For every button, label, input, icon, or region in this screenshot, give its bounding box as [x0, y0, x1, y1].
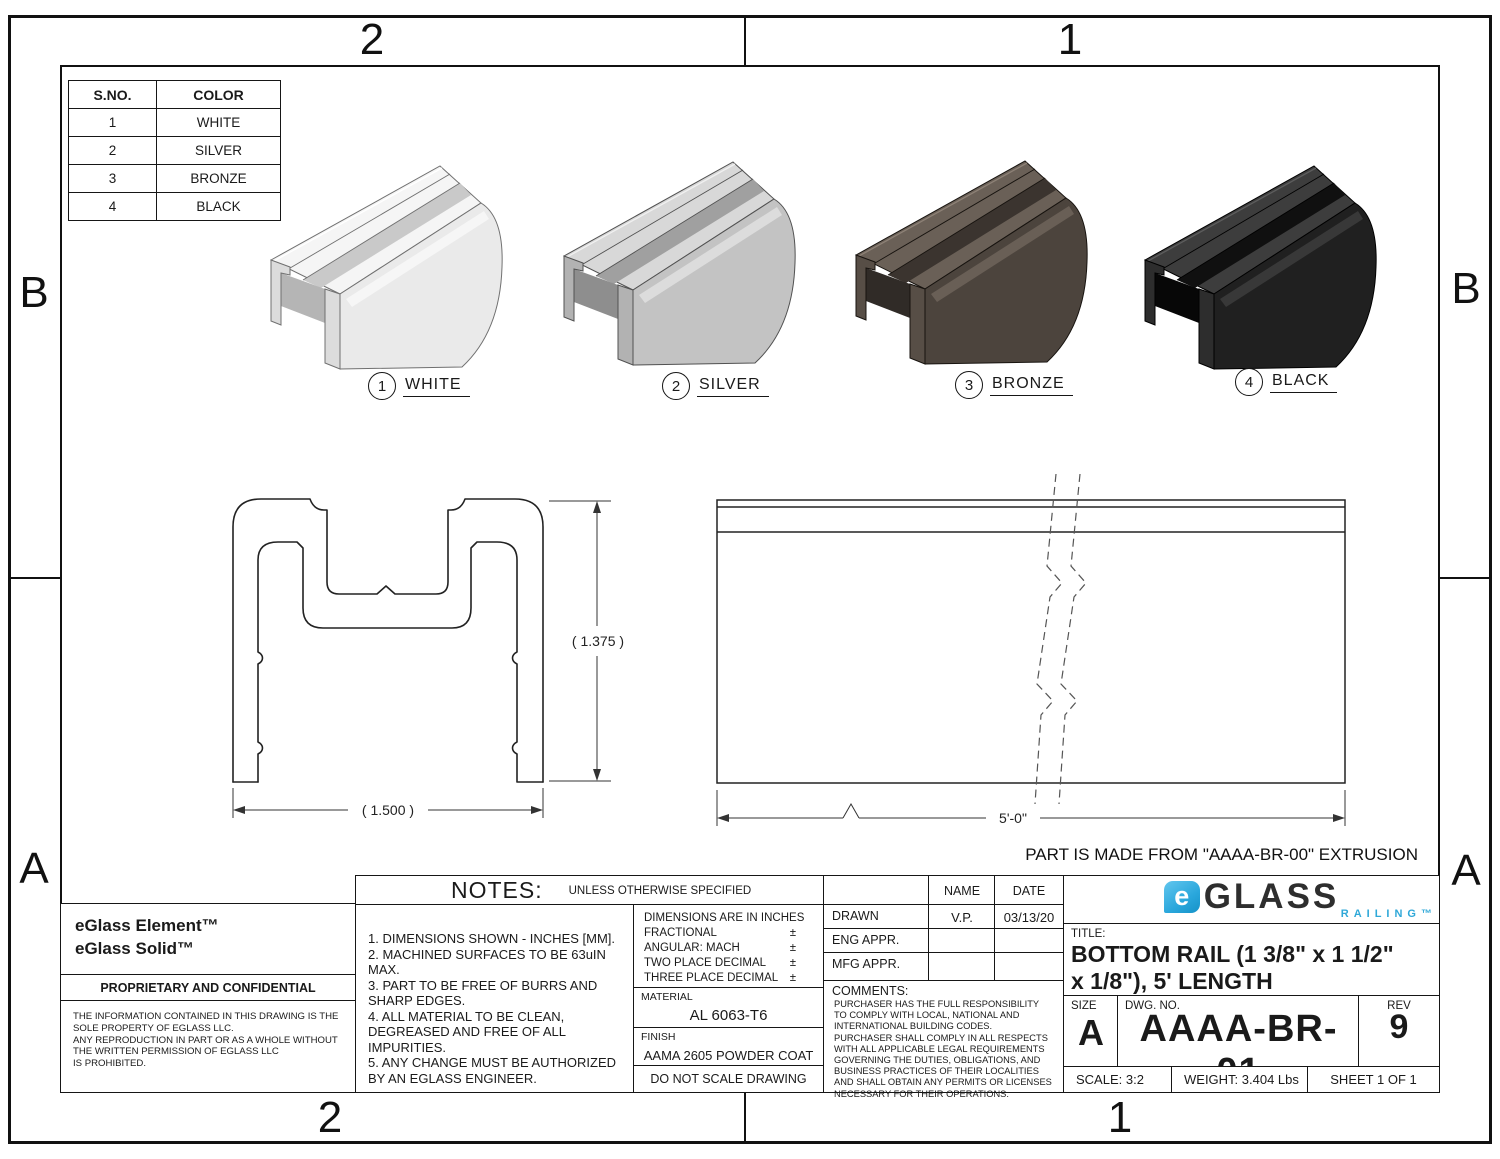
date-header: DATE [994, 875, 1064, 906]
title-label: TITLE: [1064, 924, 1439, 940]
tolerance-row: THREE PLACE DECIMAL± [644, 971, 796, 986]
finish-value: AAMA 2605 POWDER COAT [634, 1048, 823, 1063]
callout-balloon: 3 [955, 371, 983, 399]
do-not-scale-cell: DO NOT SCALE DRAWING [633, 1065, 824, 1093]
table-row: 1 WHITE [69, 109, 281, 137]
zone-label-right-b: B [1451, 264, 1480, 314]
drawn-name: V.P. [928, 904, 996, 930]
callout-label: BLACK [1270, 372, 1337, 393]
logo-cell: e GLASS RAILING™ [1063, 875, 1440, 925]
length-dimension [717, 790, 1345, 826]
iso-view-silver [546, 142, 801, 382]
color-table: S.NO. COLOR 1 WHITE 2 SILVER 3 BRONZE 4 … [68, 80, 281, 221]
mfg-appr-label: MFG APPR. [823, 952, 930, 982]
rail-body [717, 500, 1345, 783]
title-cell: TITLE: BOTTOM RAIL (1 3/8" x 1 1/2" x 1/… [1063, 923, 1440, 997]
name-header: NAME [928, 875, 996, 906]
rev-cell: REV 9 [1358, 995, 1440, 1068]
legal-line: THE WRITTEN PERMISSION OF EGLASS LLC [73, 1046, 343, 1058]
cell-sno-2: 2 [69, 137, 157, 165]
approvals-corner-cell [823, 875, 930, 906]
tolerance-block: DIMENSIONS ARE IN INCHES FRACTIONAL± ANG… [633, 904, 824, 989]
cell-sno-1: 1 [69, 109, 157, 137]
length-dim-label: 5'-0" [999, 810, 1027, 826]
company-line-1: eGlass Element™ [75, 914, 341, 937]
side-view: 5'-0" [700, 470, 1360, 840]
zone-tick-bottom [744, 1093, 746, 1143]
callout-silver: 2 SILVER [662, 372, 769, 400]
note-item: 3. PART TO BE FREE OF BURRS AND SHARP ED… [368, 978, 626, 1009]
notes-body: 1. DIMENSIONS SHOWN - INCHES [MM]. 2. MA… [355, 904, 635, 1093]
notes-title: NOTES: [451, 877, 543, 904]
note-item: 2. MACHINED SURFACES TO BE 63uIN MAX. [368, 947, 626, 978]
note-item: 1. DIMENSIONS SHOWN - INCHES [MM]. [368, 931, 626, 947]
callout-balloon: 1 [368, 372, 396, 400]
tolerance-row: ANGULAR: MACH± [644, 941, 796, 956]
comments-body: PURCHASER HAS THE FULL RESPONSIBILITY TO… [824, 999, 1063, 1100]
note-item: 4. ALL MATERIAL TO BE CLEAN, DEGREASED A… [368, 1009, 626, 1056]
finish-cell: FINISH AAMA 2605 POWDER COAT [633, 1027, 824, 1067]
zone-label-top-2: 2 [360, 15, 384, 65]
iso-view-black [1127, 146, 1382, 386]
zone-label-right-a: A [1451, 846, 1480, 896]
note-item: 5. ANY CHANGE MUST BE AUTHORIZED BY AN E… [368, 1055, 626, 1086]
color-table-header-sno: S.NO. [69, 81, 157, 109]
logo-subtitle: RAILING™ [1341, 908, 1437, 920]
proprietary-bar: PROPRIETARY AND CONFIDENTIAL [60, 974, 356, 1002]
mfg-appr-name [928, 952, 996, 982]
callout-balloon: 2 [662, 372, 690, 400]
height-dim-label: ( 1.375 ) [572, 633, 624, 649]
scale-cell: SCALE: 3:2 [1063, 1066, 1173, 1093]
callout-white: 1 WHITE [368, 372, 470, 400]
table-row: 3 BRONZE [69, 165, 281, 193]
legal-line: IS PROHIBITED. [73, 1058, 343, 1070]
legal-line: THE INFORMATION CONTAINED IN THIS DRAWIN… [73, 1011, 343, 1023]
drawn-date: 03/13/20 [994, 904, 1064, 930]
dwg-no-cell: DWG. NO. AAAA-BR-01 [1117, 995, 1360, 1068]
tolerance-row: TWO PLACE DECIMAL± [644, 956, 796, 971]
break-lines [1035, 474, 1086, 804]
zone-tick-left [8, 577, 60, 579]
callout-bronze: 3 BRONZE [955, 371, 1073, 399]
tolerance-row: FRACTIONAL± [644, 926, 796, 941]
legal-line: SOLE PROPERTY OF EGLASS LLC. [73, 1023, 343, 1035]
zone-tick-right [1440, 577, 1492, 579]
eng-appr-label: ENG APPR. [823, 928, 930, 954]
callout-label: SILVER [697, 376, 769, 397]
callout-label: BRONZE [990, 375, 1073, 396]
company-names: eGlass Element™ eGlass Solid™ [60, 903, 356, 976]
cell-color-1: WHITE [157, 109, 281, 137]
width-dim-label: ( 1.500 ) [362, 802, 414, 818]
legal-line: ANY REPRODUCTION IN PART OR AS A WHOLE W… [73, 1035, 343, 1047]
zone-label-bottom-1: 1 [1108, 1093, 1132, 1143]
material-label: MATERIAL [634, 988, 823, 1006]
drawing-title-line-2: x 1/8"), 5' LENGTH [1064, 967, 1439, 994]
color-table-header-row: S.NO. COLOR [69, 81, 281, 109]
color-table-header-color: COLOR [157, 81, 281, 109]
cell-sno-4: 4 [69, 193, 157, 221]
drawn-label: DRAWN [823, 904, 930, 930]
dimension-arrowheads [233, 501, 601, 814]
extrusion-note: PART IS MADE FROM "AAAA-BR-00" EXTRUSION [1025, 845, 1418, 865]
callout-balloon: 4 [1235, 368, 1263, 396]
sheet-cell: SHEET 1 OF 1 [1307, 1066, 1440, 1093]
notes-subtitle: UNLESS OTHERWISE SPECIFIED [569, 885, 752, 897]
zone-label-left-b: B [19, 268, 48, 318]
iso-view-white [253, 146, 508, 386]
callout-black: 4 BLACK [1235, 368, 1337, 396]
iso-view-bronze [838, 141, 1093, 381]
section-profile [233, 499, 543, 782]
tolerance-line: DIMENSIONS ARE IN INCHES [644, 911, 813, 926]
weight-cell: WEIGHT: 3.404 Lbs [1171, 1066, 1309, 1093]
notes-header: NOTES: UNLESS OTHERWISE SPECIFIED [355, 875, 824, 906]
material-value: AL 6063-T6 [634, 1007, 823, 1024]
finish-label: FINISH [634, 1028, 823, 1046]
rev-value: 9 [1359, 1008, 1439, 1047]
cell-sno-3: 3 [69, 165, 157, 193]
size-cell: SIZE A [1063, 995, 1119, 1068]
eng-appr-name [928, 928, 996, 954]
mfg-appr-date [994, 952, 1064, 982]
zone-label-top-1: 1 [1058, 15, 1082, 65]
logo-brand-text: GLASS [1204, 881, 1340, 913]
size-value: A [1064, 1012, 1118, 1054]
drawing-title-line-1: BOTTOM RAIL (1 3/8" x 1 1/2" [1064, 940, 1439, 967]
zone-label-bottom-2: 2 [318, 1093, 342, 1143]
section-view: ( 1.375 ) ( 1.500 ) [200, 480, 660, 850]
callout-label: WHITE [403, 376, 470, 397]
eng-appr-date [994, 928, 1064, 954]
drawing-sheet: 2 1 2 1 B A B A S.NO. COLOR 1 WHITE 2 SI… [0, 0, 1500, 1159]
legal-text: THE INFORMATION CONTAINED IN THIS DRAWIN… [60, 1000, 356, 1093]
logo-e-icon: e [1164, 881, 1200, 913]
size-label: SIZE [1064, 996, 1118, 1012]
zone-label-left-a: A [19, 844, 48, 894]
zone-tick-top [744, 15, 746, 65]
table-row: 2 SILVER [69, 137, 281, 165]
company-logo: e GLASS RAILING™ [1064, 876, 1439, 924]
table-row: 4 BLACK [69, 193, 281, 221]
material-cell: MATERIAL AL 6063-T6 [633, 987, 824, 1029]
comments-cell: COMMENTS: PURCHASER HAS THE FULL RESPONS… [823, 980, 1064, 1093]
company-line-2: eGlass Solid™ [75, 937, 341, 960]
comments-label: COMMENTS: [824, 981, 1063, 999]
section-dimensions [233, 501, 611, 818]
